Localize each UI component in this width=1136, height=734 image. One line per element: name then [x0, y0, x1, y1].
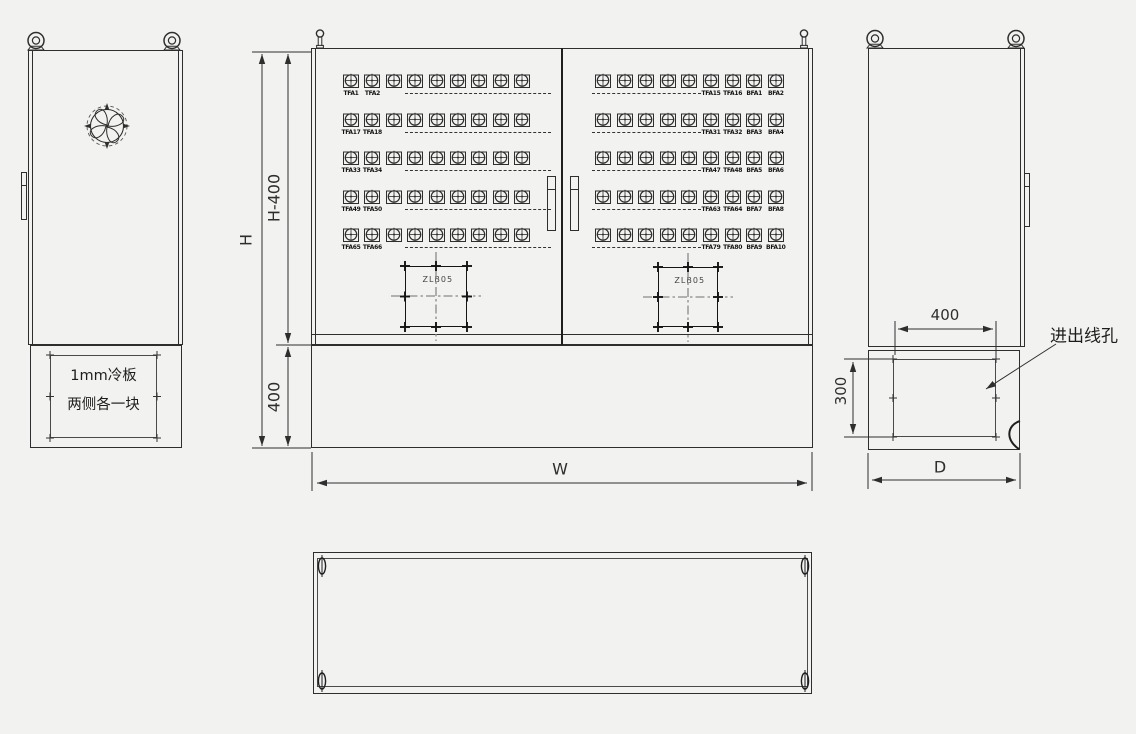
connector-label: TFA16	[721, 90, 745, 97]
cable-entry-hole	[893, 359, 996, 437]
junction-box-right: ZLB05	[658, 267, 718, 327]
connector-icon	[616, 72, 634, 89]
junction-box-label: ZLB05	[669, 276, 710, 285]
left-view-frame-edge	[178, 50, 179, 345]
connector-label: TFA31	[699, 129, 723, 136]
cold-plate-note-line2: 两侧各一块	[52, 391, 155, 420]
right-view-side-handle	[1024, 173, 1030, 227]
connector-label: TFA79	[699, 244, 723, 251]
connector-icon	[745, 72, 763, 89]
connector-icon	[659, 188, 677, 205]
connector-icon	[594, 149, 612, 166]
right-view-body	[868, 48, 1025, 347]
connector-icon	[385, 111, 403, 128]
connector-label: TFA34	[360, 167, 384, 174]
left-view-door-edge	[32, 50, 33, 345]
connector-icon	[513, 111, 531, 128]
dimension-base-height-label: 400	[265, 382, 284, 413]
front-view-base	[311, 345, 813, 448]
connector-icon	[724, 111, 742, 128]
connector-icon	[637, 226, 655, 243]
connector-row-ellipsis	[592, 209, 701, 210]
connector-label: TFA18	[360, 129, 384, 136]
connector-label: BFA9	[742, 244, 766, 251]
connector-icon	[449, 111, 467, 128]
connector-icon	[637, 72, 655, 89]
dimension-overall-width-label: W	[552, 460, 568, 479]
connector-icon	[724, 226, 742, 243]
connector-icon	[680, 111, 698, 128]
connector-icon	[363, 72, 381, 89]
connector-icon	[637, 111, 655, 128]
connector-icon	[385, 188, 403, 205]
connector-icon	[342, 72, 360, 89]
connector-icon	[659, 149, 677, 166]
connector-icon	[767, 226, 785, 243]
connector-icon	[702, 188, 720, 205]
connector-icon	[385, 226, 403, 243]
right-view-door-edge	[1020, 48, 1021, 347]
connector-icon	[492, 188, 510, 205]
connector-icon	[745, 188, 763, 205]
connector-icon	[513, 226, 531, 243]
connector-icon	[594, 226, 612, 243]
connector-label: TFA64	[721, 206, 745, 213]
connector-icon	[492, 111, 510, 128]
connector-icon	[470, 226, 488, 243]
connector-icon	[449, 226, 467, 243]
connector-label: BFA3	[742, 129, 766, 136]
connector-label: TFA47	[699, 167, 723, 174]
connector-icon	[724, 188, 742, 205]
connector-label: BFA4	[764, 129, 788, 136]
plan-view-inner	[317, 558, 808, 687]
lifting-eye-icon	[28, 30, 1024, 50]
dimension-hole-height-label: 300	[832, 377, 850, 406]
connector-icon	[680, 149, 698, 166]
dimension-body-height-label: H-400	[265, 174, 284, 222]
connector-icon	[702, 226, 720, 243]
connector-icon	[470, 188, 488, 205]
engineering-drawing: 1mm冷板 两侧各一块 TFA1TFA2TFA17TFA18TFA33TFA34…	[0, 0, 1136, 734]
connector-icon	[745, 149, 763, 166]
connector-icon	[724, 72, 742, 89]
connector-icon	[680, 72, 698, 89]
connector-icon	[470, 72, 488, 89]
dimension-overall-height-label: H	[237, 234, 256, 246]
connector-label: TFA32	[721, 129, 745, 136]
connector-row-ellipsis	[405, 93, 551, 94]
dimension-overall-depth-label: D	[934, 458, 946, 477]
connector-icon	[767, 111, 785, 128]
connector-row-ellipsis	[592, 132, 701, 133]
connector-label: TFA49	[339, 206, 363, 213]
connector-icon	[406, 149, 424, 166]
connector-icon	[659, 226, 677, 243]
connector-icon	[616, 226, 634, 243]
connector-label: TFA15	[699, 90, 723, 97]
connector-icon	[680, 188, 698, 205]
connector-icon	[428, 111, 446, 128]
connector-row-ellipsis	[405, 132, 551, 133]
connector-icon	[428, 149, 446, 166]
connector-icon	[406, 111, 424, 128]
connector-icon	[342, 149, 360, 166]
connector-icon	[363, 111, 381, 128]
connector-icon	[767, 149, 785, 166]
connector-icon	[616, 188, 634, 205]
connector-label: TFA17	[339, 129, 363, 136]
connector-row-ellipsis	[592, 170, 701, 171]
connector-icon	[406, 226, 424, 243]
connector-icon	[767, 188, 785, 205]
connector-icon	[428, 188, 446, 205]
connector-label: TFA63	[699, 206, 723, 213]
connector-label: BFA1	[742, 90, 766, 97]
connector-icon	[492, 149, 510, 166]
connector-icon	[428, 226, 446, 243]
junction-box-left: ZLB05	[405, 266, 467, 327]
connector-icon	[767, 72, 785, 89]
connector-icon	[594, 111, 612, 128]
connector-icon	[363, 188, 381, 205]
connector-label: TFA2	[360, 90, 384, 97]
connector-icon	[513, 149, 531, 166]
connector-icon	[342, 226, 360, 243]
connector-row-ellipsis	[592, 93, 701, 94]
connector-icon	[616, 111, 634, 128]
connector-label: TFA50	[360, 206, 384, 213]
connector-icon	[659, 111, 677, 128]
connector-icon	[513, 72, 531, 89]
connector-icon	[594, 72, 612, 89]
connector-icon	[513, 188, 531, 205]
connector-icon	[616, 149, 634, 166]
connector-icon	[449, 72, 467, 89]
connector-icon	[745, 226, 763, 243]
connector-label: BFA8	[764, 206, 788, 213]
connector-icon	[659, 72, 677, 89]
connector-icon	[342, 188, 360, 205]
cold-plate-note: 1mm冷板 两侧各一块	[52, 362, 155, 420]
left-view-side-handle	[21, 172, 27, 220]
connector-row-ellipsis	[592, 247, 701, 248]
connector-label: TFA48	[721, 167, 745, 174]
connector-icon	[637, 188, 655, 205]
connector-label: TFA66	[360, 244, 384, 251]
connector-icon	[470, 149, 488, 166]
connector-label: BFA6	[764, 167, 788, 174]
connector-icon	[492, 226, 510, 243]
connector-label: TFA1	[339, 90, 363, 97]
connector-icon	[428, 72, 446, 89]
cable-hole-callout: 进出线孔	[1050, 322, 1118, 347]
connector-label: TFA80	[721, 244, 745, 251]
connector-icon	[745, 111, 763, 128]
connector-icon	[702, 72, 720, 89]
connector-row-ellipsis	[405, 170, 551, 171]
connector-icon	[470, 111, 488, 128]
dimension-hole-width-label: 400	[931, 306, 960, 324]
connector-icon	[385, 72, 403, 89]
connector-icon	[385, 149, 403, 166]
connector-icon	[449, 149, 467, 166]
connector-label: TFA65	[339, 244, 363, 251]
connector-label: TFA33	[339, 167, 363, 174]
connector-row-ellipsis	[405, 247, 551, 248]
connector-icon	[680, 226, 698, 243]
connector-icon	[363, 149, 381, 166]
connector-icon	[702, 111, 720, 128]
connector-icon	[492, 72, 510, 89]
connector-icon	[594, 188, 612, 205]
cold-plate-note-line1: 1mm冷板	[52, 362, 155, 391]
connector-icon	[637, 149, 655, 166]
connector-icon	[702, 149, 720, 166]
left-view-body	[28, 50, 183, 345]
connector-icon	[406, 188, 424, 205]
junction-box-label: ZLB05	[417, 275, 459, 284]
connector-icon	[406, 72, 424, 89]
connector-icon	[449, 188, 467, 205]
connector-row-ellipsis	[405, 209, 551, 210]
connector-label: BFA5	[742, 167, 766, 174]
connector-label: BFA10	[764, 244, 788, 251]
connector-label: BFA2	[764, 90, 788, 97]
connector-icon	[724, 149, 742, 166]
connector-icon	[363, 226, 381, 243]
connector-icon	[342, 111, 360, 128]
connector-label: BFA7	[742, 206, 766, 213]
